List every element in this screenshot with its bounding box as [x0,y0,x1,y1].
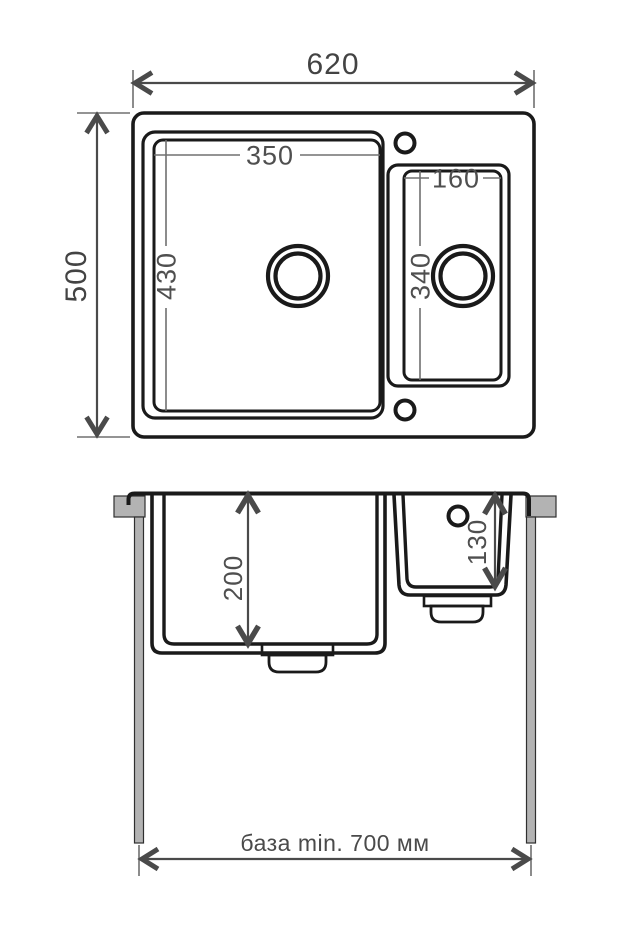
sink-outline [133,113,534,437]
section-view: 200 130 база min. 700 мм [114,494,556,877]
drain-inner-ring [441,254,486,299]
dim-base-width: база min. 700 мм [139,830,531,876]
dim-main-bowl-depth: 430 [152,140,182,411]
dim-overall-width: 620 [133,48,534,108]
sink-technical-drawing: 350 430 160 340 620 [0,0,636,936]
faucet-hole-bottom [396,401,415,420]
drain-inner-ring [276,254,321,299]
dim-text-430: 430 [152,252,182,300]
faucet-hole-top [396,134,415,153]
plan-view: 350 430 160 340 [133,113,534,437]
dim-text-500: 500 [60,249,93,302]
main-bowl-outer-profile [152,495,385,653]
dim-small-bowl-depth: 340 [406,171,436,380]
small-drain-flange [424,596,491,606]
base-note-text: база min. 700 мм [240,830,429,856]
main-drain-cup [269,655,326,672]
dim-text-350: 350 [246,141,294,171]
small-bowl-drain [433,246,493,306]
dim-text-620: 620 [306,48,359,81]
dim-overall-depth: 500 [60,113,130,437]
small-drain-cup [431,606,483,622]
cabinet-side-right [527,517,536,843]
dim-main-bowl-depth-section: 200 [218,496,259,644]
dim-text-340: 340 [406,252,436,300]
dim-main-bowl-width: 350 [154,141,380,171]
main-bowl-inner-profile [164,495,377,644]
cabinet-side-left [135,517,144,843]
drawing-svg: 350 430 160 340 620 [0,0,636,936]
dim-text-130: 130 [462,519,492,565]
main-bowl-drain [268,246,328,306]
dim-text-200: 200 [218,555,248,601]
dim-text-160: 160 [432,164,480,194]
dim-small-bowl-width: 160 [404,164,501,194]
